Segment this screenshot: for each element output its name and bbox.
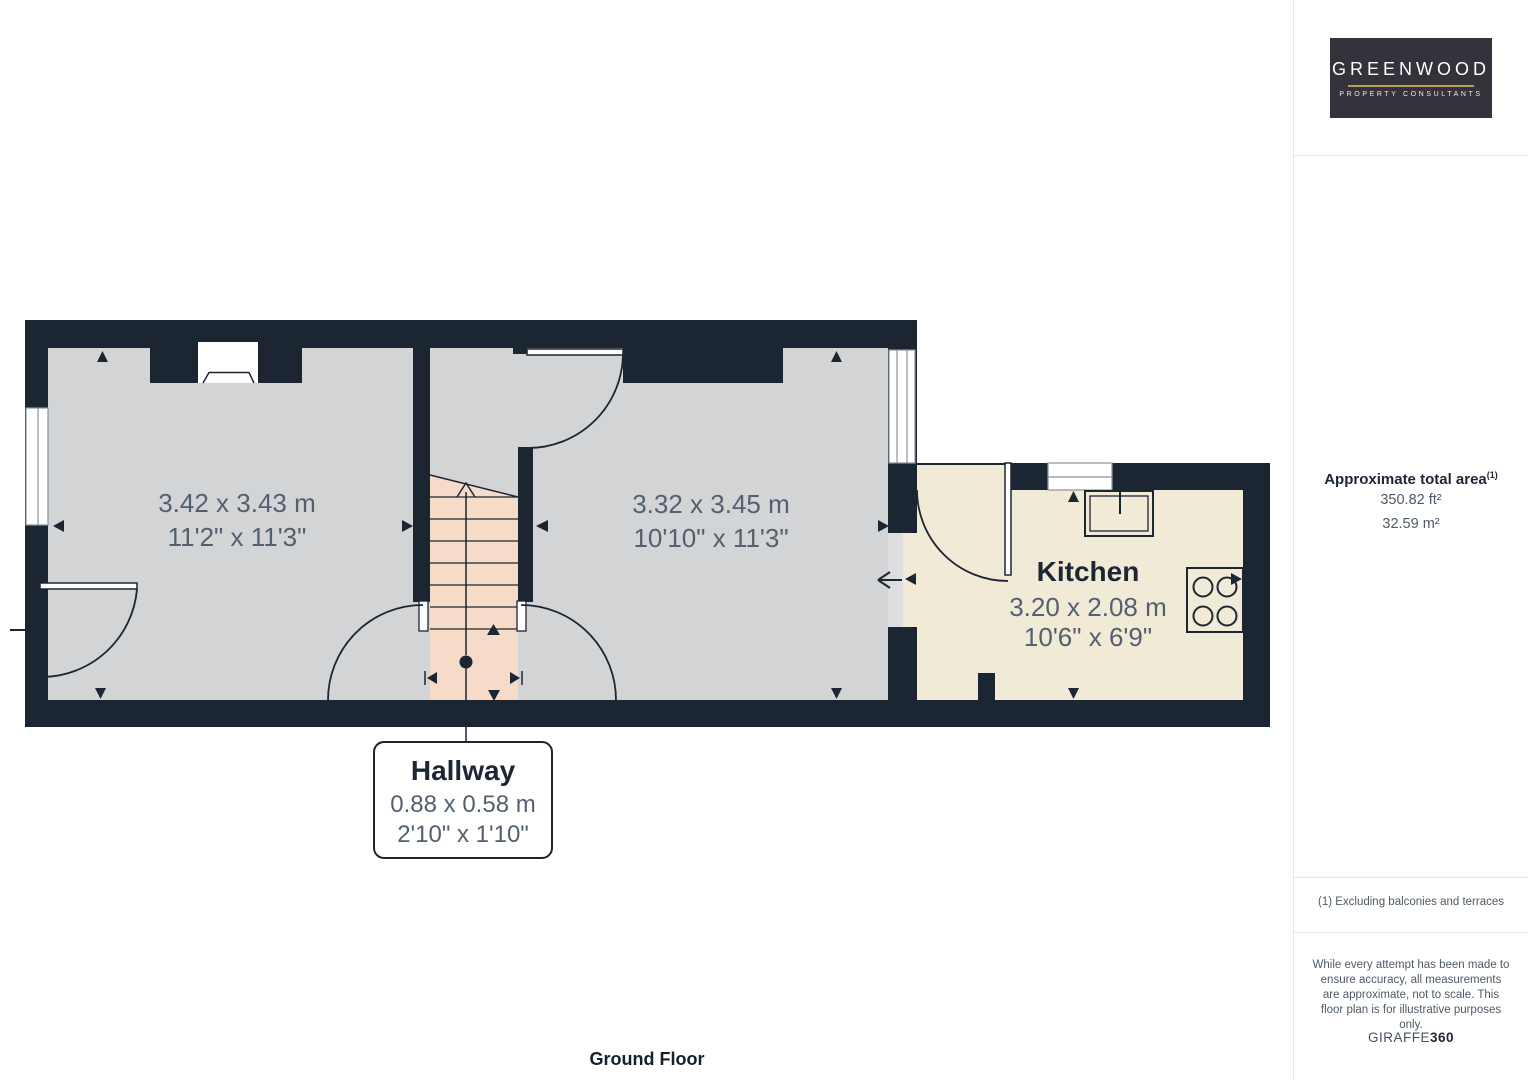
total-area-title-text: Approximate total area — [1324, 471, 1487, 488]
total-area-title: Approximate total area(1) — [1294, 470, 1528, 488]
room2-metric: 3.32 x 3.45 m — [632, 489, 790, 519]
kitchen-metric: 3.20 x 2.08 m — [1009, 592, 1167, 622]
chimney-breast-room2 — [623, 320, 783, 383]
disclaimer-text: While every attempt has been made to ens… — [1311, 958, 1511, 1033]
kitchen-doorway-floor — [917, 465, 1008, 490]
stair-wall-left — [413, 348, 430, 602]
sidebar-divider — [1294, 932, 1528, 933]
floorplan-page: Hallway 0.88 x 0.58 m 2'10" x 1'10" 3.42… — [0, 0, 1528, 1080]
sink-icon — [1085, 491, 1153, 536]
sidebar-divider — [1294, 155, 1528, 156]
total-area-block: Approximate total area(1) 350.82 ft² 32.… — [1294, 470, 1528, 536]
giraffe360-suffix: 360 — [1430, 1030, 1454, 1045]
window-left-wall — [26, 408, 48, 525]
info-sidebar: GREENWOOD PROPERTY CONSULTANTS Approxima… — [1293, 0, 1528, 1080]
room1-imperial: 11'2" x 11'3" — [168, 522, 307, 552]
sidebar-divider — [1294, 877, 1528, 878]
hallway-name: Hallway — [411, 755, 516, 786]
room1-metric: 3.42 x 3.43 m — [158, 488, 316, 518]
hallway-metric: 0.88 x 0.58 m — [390, 791, 535, 818]
giraffe360-brand: GIRAFFE — [1368, 1030, 1430, 1045]
total-area-imperial: 350.82 ft² — [1294, 488, 1528, 512]
agency-logo-subtitle: PROPERTY CONSULTANTS — [1339, 91, 1482, 98]
kitchen-name: Kitchen — [1037, 556, 1140, 587]
stairs — [419, 475, 526, 700]
area-footnote: (1) Excluding balconies and terraces — [1294, 896, 1528, 908]
footnote-marker: (1) — [1487, 470, 1498, 480]
floor-plan-drawing: Hallway 0.88 x 0.58 m 2'10" x 1'10" 3.42… — [0, 0, 1290, 1080]
chimney-breast-room1 — [150, 320, 302, 383]
total-area-metric: 32.59 m² — [1294, 512, 1528, 536]
window-right-wall — [889, 350, 915, 463]
giraffe360-credit: GIRAFFE360 — [1294, 1030, 1528, 1045]
fireplace-icon — [203, 373, 254, 384]
agency-logo: GREENWOOD PROPERTY CONSULTANTS — [1330, 38, 1492, 118]
logo-divider — [1348, 85, 1474, 87]
agency-logo-title: GREENWOOD — [1332, 59, 1490, 80]
wall-notch — [513, 348, 527, 354]
floor-label: Ground Floor — [590, 1049, 705, 1069]
callout-anchor-dot — [460, 656, 473, 669]
kitchen-imperial: 10'6" x 6'9" — [1024, 622, 1152, 652]
hallway-imperial: 2'10" x 1'10" — [397, 821, 529, 848]
kitchen-wall-stub — [978, 673, 995, 700]
window-kitchen — [1048, 463, 1112, 490]
room2-imperial: 10'10" x 11'3" — [633, 523, 788, 553]
stair-wall-right — [518, 447, 533, 602]
